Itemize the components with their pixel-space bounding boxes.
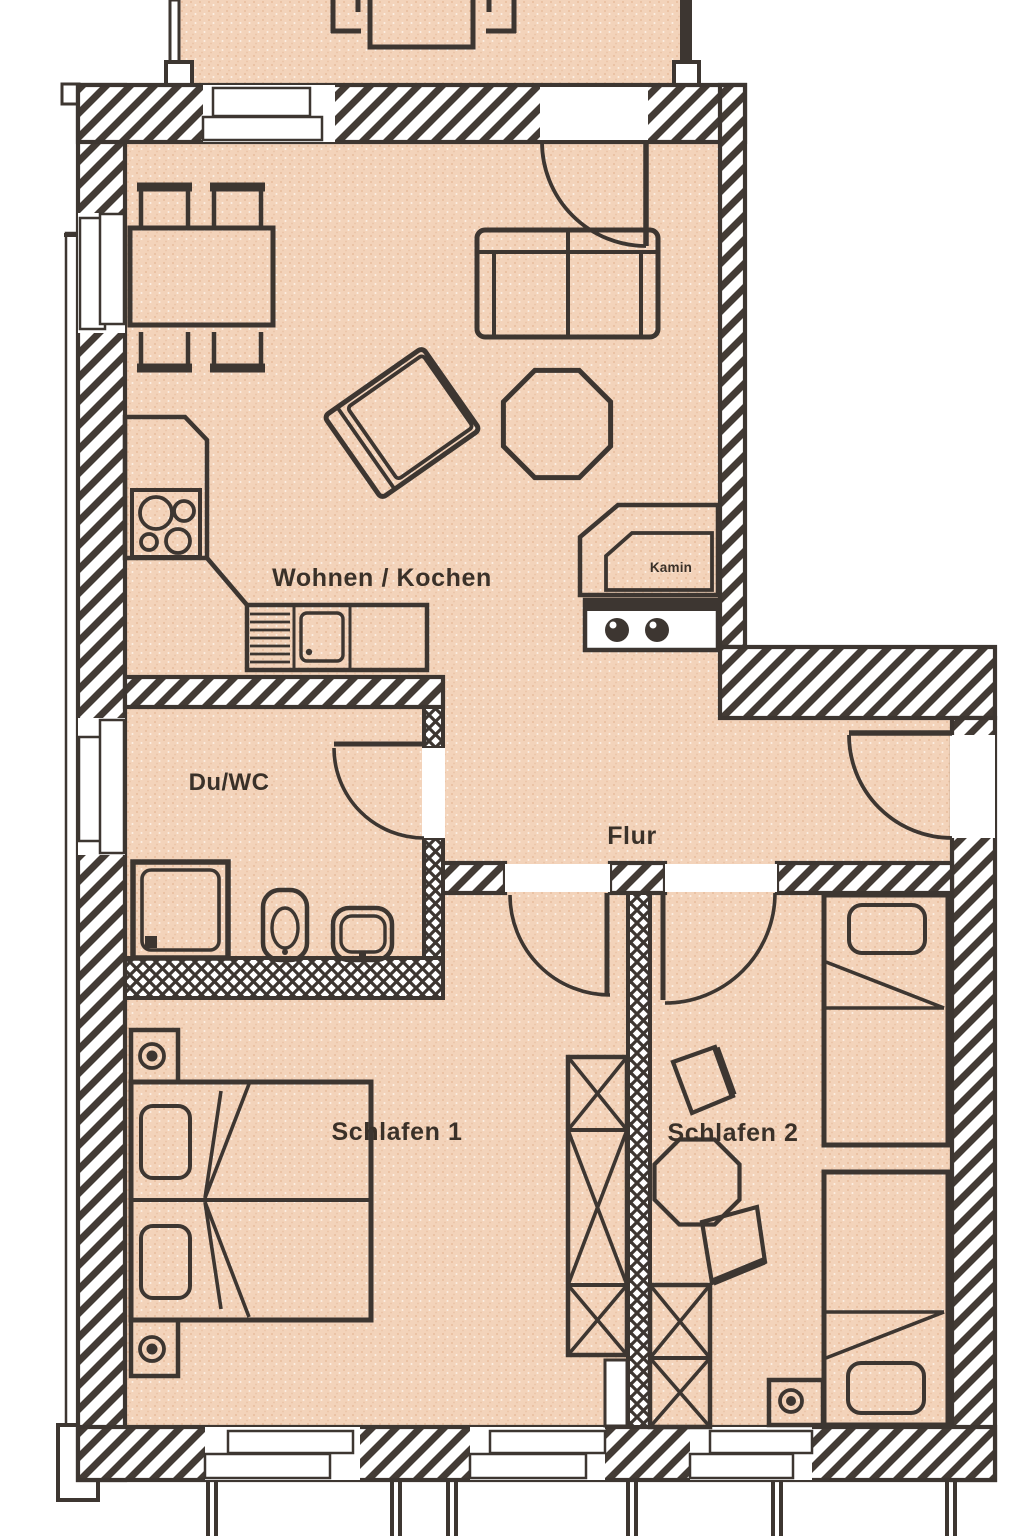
label-bedroom-2: Schlafen 2 (667, 1119, 798, 1147)
wall-hall-top-band (720, 647, 995, 718)
label-hallway: Flur (607, 822, 657, 850)
balcony-left-wall (170, 0, 179, 62)
window-top-living (203, 85, 335, 142)
stove-knob (645, 618, 669, 642)
wall-bath-bottom (125, 958, 443, 998)
window-bottom-bedroom2 (690, 1427, 812, 1480)
wall-kitchen-bath (125, 677, 443, 707)
balcony (166, 0, 699, 85)
balcony-right-wall (680, 0, 692, 63)
wall-hall-stub-right (777, 863, 952, 893)
stove-knob (605, 618, 629, 642)
label-bedroom-1: Schlafen 1 (331, 1118, 462, 1146)
window-bottom-bedroom1-right (470, 1427, 605, 1480)
label-shower-wc: Du/WC (189, 769, 270, 796)
floor-plan-page: Wohnen / Kochen Du/WC Flur Schlafen 1 Sc… (0, 0, 1024, 1536)
wall-bath-right-lower (424, 838, 443, 962)
window-bottom-bedroom1-left (205, 1427, 360, 1480)
sink-drain (306, 649, 312, 655)
duct-niche (605, 1360, 627, 1426)
window-left-living (78, 213, 125, 333)
window-left-bath (78, 718, 125, 855)
wall-hall-stub-mid (610, 863, 665, 893)
balcony-post-right (674, 62, 699, 85)
stove-unit (585, 600, 718, 650)
balcony-post-left (166, 62, 192, 85)
shower-drain (145, 936, 157, 948)
basin-tap (359, 952, 366, 960)
floor-plan-canvas: Wohnen / Kochen Du/WC Flur Schlafen 1 Sc… (0, 0, 1024, 1536)
wall-right-upper (720, 85, 745, 647)
wall-bath-right-upper (424, 707, 443, 748)
label-living-kitchen: Wohnen / Kochen (272, 564, 492, 592)
wall-hall-stub-left (442, 863, 505, 893)
wall-bedroom-partition (628, 893, 650, 1427)
balcony-floor (179, 0, 680, 85)
label-chimney: Kamin (650, 560, 692, 575)
balcony-railing-below (208, 1482, 955, 1536)
dishwasher-unit (250, 614, 290, 662)
